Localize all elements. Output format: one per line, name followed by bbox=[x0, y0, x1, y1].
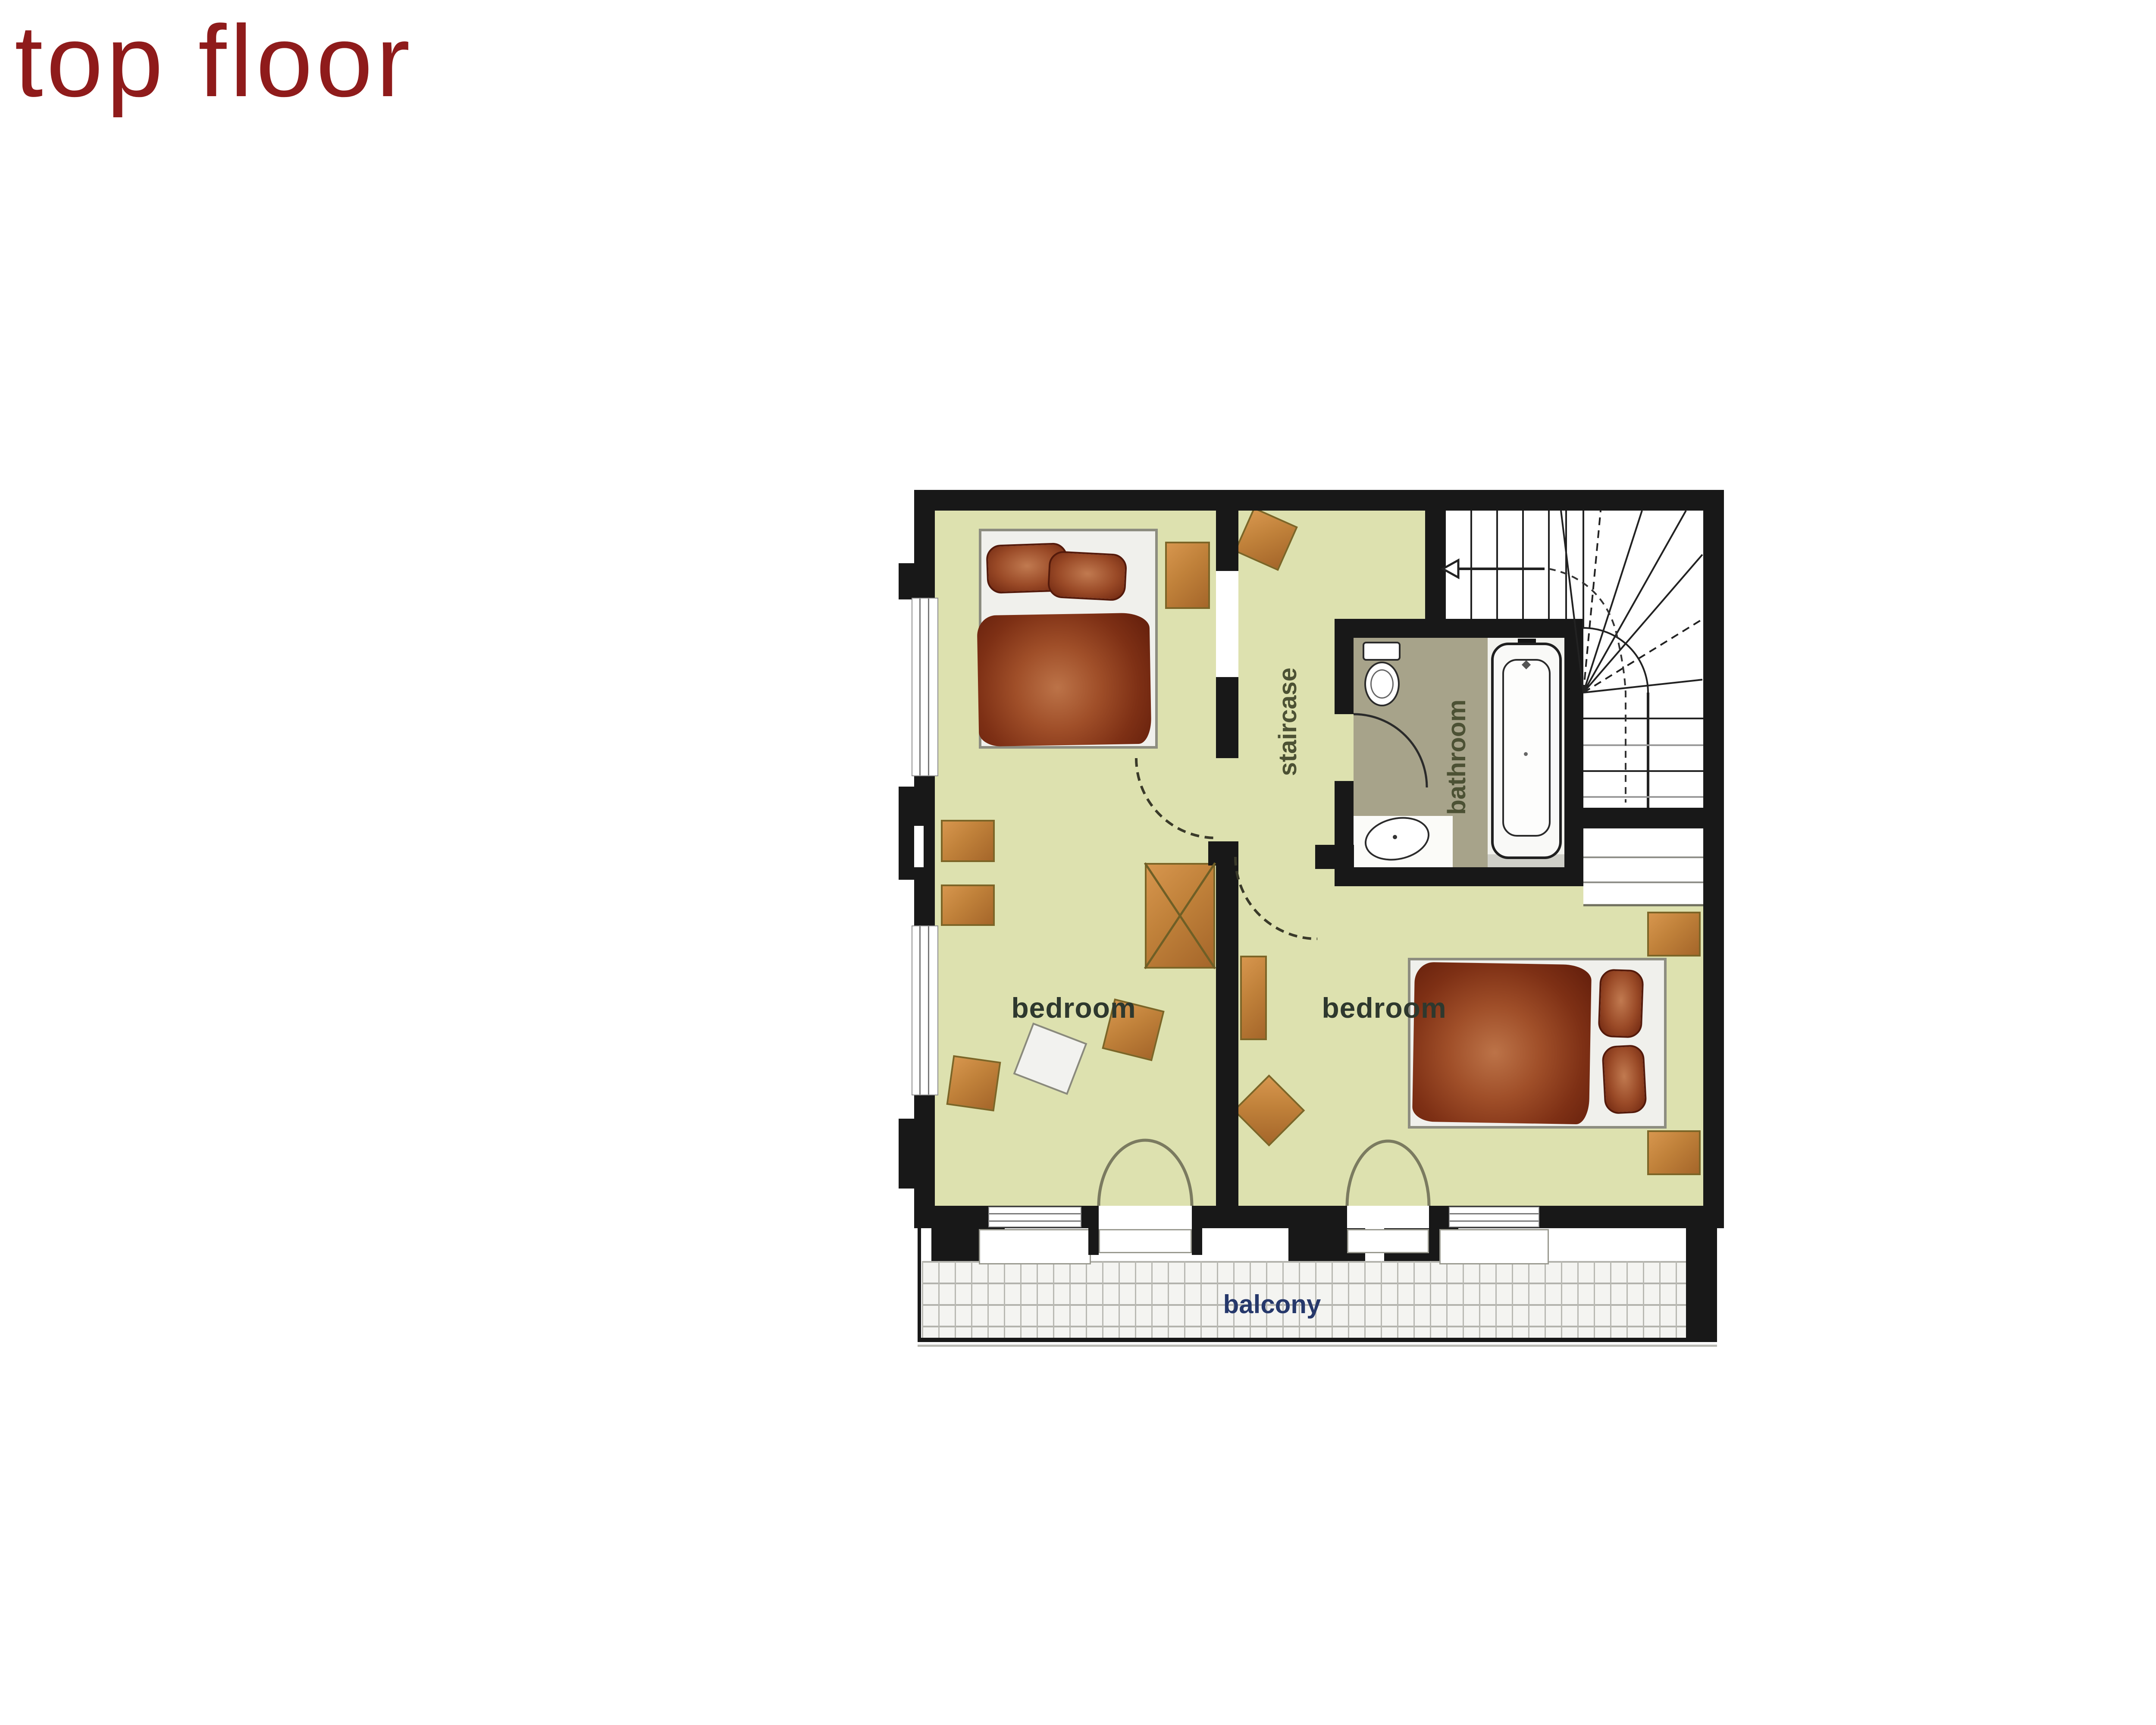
wall-bench bbox=[941, 820, 995, 862]
balcony-rail-left bbox=[918, 1228, 921, 1342]
label-balcony-text: balcony bbox=[1223, 1289, 1321, 1319]
duvet bbox=[1412, 962, 1592, 1124]
window-sill bbox=[979, 1229, 1091, 1264]
window-jamb bbox=[899, 563, 914, 599]
label-bedroom-left-text: bedroom bbox=[1011, 991, 1136, 1024]
bathtub-drain bbox=[1524, 752, 1528, 756]
door-leaf bbox=[1315, 845, 1354, 869]
desk bbox=[1240, 956, 1267, 1040]
toilet-tank bbox=[1363, 642, 1401, 661]
threshold-mark bbox=[1192, 1228, 1202, 1255]
window bbox=[912, 598, 938, 776]
balcony-rail-shadow bbox=[918, 1345, 1717, 1347]
window-sill bbox=[1439, 1229, 1549, 1264]
label-bedroom-right: bedroom bbox=[1298, 989, 1470, 1026]
duvet bbox=[977, 613, 1151, 747]
wall-notch bbox=[914, 826, 924, 867]
door-threshold bbox=[1099, 1229, 1192, 1253]
wall-segment bbox=[1335, 867, 1583, 886]
wall-segment bbox=[1216, 866, 1238, 1206]
staircase-floor-right bbox=[1583, 619, 1703, 808]
wall-segment bbox=[1216, 677, 1238, 758]
window bbox=[1449, 1207, 1539, 1227]
wall-segment bbox=[1564, 619, 1583, 886]
wall-segment bbox=[1335, 619, 1354, 714]
window bbox=[988, 1207, 1081, 1227]
wall-segment bbox=[1425, 511, 1446, 619]
wall-opening bbox=[1216, 571, 1238, 677]
pillow bbox=[1601, 1044, 1647, 1115]
chair-tilted bbox=[946, 1055, 1001, 1111]
balcony-rail-bottom bbox=[918, 1338, 1717, 1342]
wall-segment bbox=[1583, 808, 1703, 828]
label-staircase-text: staircase bbox=[1273, 668, 1302, 776]
threshold-mark bbox=[1088, 1228, 1099, 1255]
label-bathroom: bathroom bbox=[1435, 665, 1478, 850]
staircase-floor-top bbox=[1446, 511, 1703, 619]
door-leaf bbox=[1208, 841, 1238, 866]
door-opening bbox=[1099, 1206, 1192, 1228]
wall-bench bbox=[941, 884, 995, 926]
window-jamb bbox=[899, 787, 914, 880]
bedside-table bbox=[1647, 912, 1701, 957]
label-bedroom-right-text: bedroom bbox=[1322, 991, 1446, 1024]
label-bedroom-left: bedroom bbox=[987, 989, 1160, 1026]
threshold-mark bbox=[1337, 1228, 1347, 1255]
toilet-bowl-inner bbox=[1370, 669, 1394, 699]
label-balcony: balcony bbox=[1186, 1287, 1358, 1321]
pillow bbox=[1598, 969, 1644, 1038]
label-bathroom-text: bathroom bbox=[1442, 699, 1471, 815]
bathtub-inner bbox=[1502, 659, 1551, 837]
door-opening bbox=[1347, 1206, 1429, 1228]
bedside-table bbox=[1165, 542, 1210, 609]
wall-segment bbox=[1335, 619, 1583, 638]
window bbox=[912, 925, 938, 1095]
pillow bbox=[1047, 550, 1127, 601]
page: top floor bbox=[0, 0, 2156, 1725]
wall-segment bbox=[1216, 511, 1238, 571]
stair-closet-floor bbox=[1583, 828, 1703, 906]
floor-plan: bedroom bedroom staircase bathroom balco… bbox=[914, 490, 1724, 1351]
door-threshold bbox=[1347, 1229, 1429, 1253]
sink-drain bbox=[1393, 835, 1397, 839]
wall-segment bbox=[1703, 490, 1724, 1206]
wardrobe bbox=[1145, 863, 1215, 969]
window-jamb bbox=[899, 1119, 914, 1189]
threshold-mark bbox=[1429, 1228, 1439, 1255]
label-staircase: staircase bbox=[1267, 631, 1308, 812]
page-title: top floor bbox=[15, 3, 414, 120]
bedside-table bbox=[1647, 1130, 1701, 1175]
wall-segment bbox=[914, 490, 1724, 511]
balcony-column bbox=[1686, 1228, 1717, 1342]
